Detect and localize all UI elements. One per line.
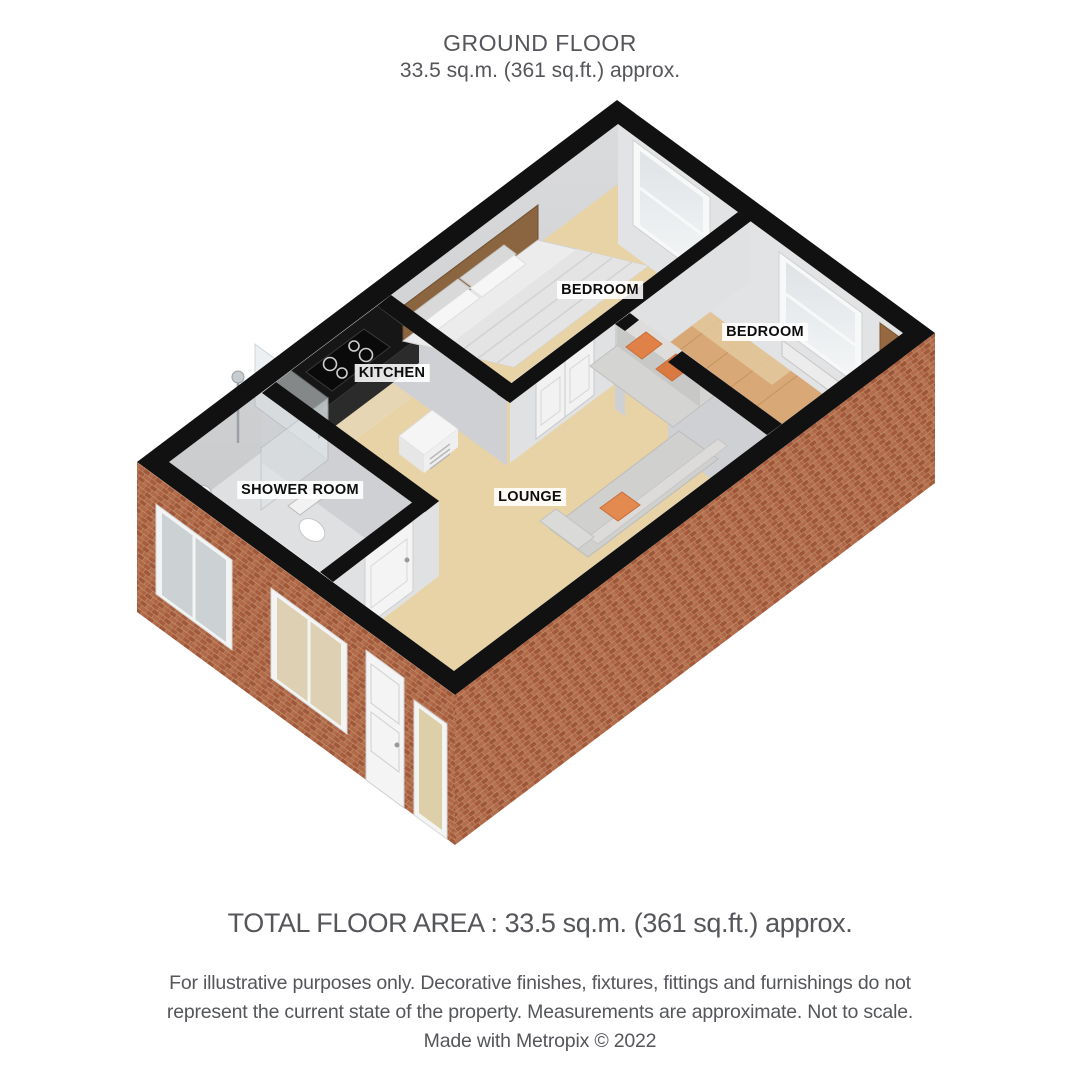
door-knob-icon	[395, 743, 400, 748]
floorplan-page: GROUND FLOOR 33.5 sq.m. (361 sq.ft.) app…	[0, 0, 1080, 1080]
disclaimer-line-1: For illustrative purposes only. Decorati…	[0, 972, 1080, 995]
room-label-kitchen: KITCHEN	[355, 364, 430, 382]
front-door	[366, 650, 404, 808]
shower-head-icon	[232, 371, 244, 383]
total-floor-area: TOTAL FLOOR AREA : 33.5 sq.m. (361 sq.ft…	[0, 908, 1080, 939]
disclaimer-line-3: Made with Metropix © 2022	[0, 1030, 1080, 1053]
room-label-bedroom-top: BEDROOM	[557, 281, 643, 299]
disclaimer-line-2: represent the current state of the prope…	[0, 1001, 1080, 1024]
room-label-lounge: LOUNGE	[494, 488, 566, 506]
room-label-bedroom-right: BEDROOM	[722, 323, 808, 341]
door-sidelight-window	[414, 700, 447, 839]
room-label-shower-room: SHOWER ROOM	[237, 481, 363, 499]
